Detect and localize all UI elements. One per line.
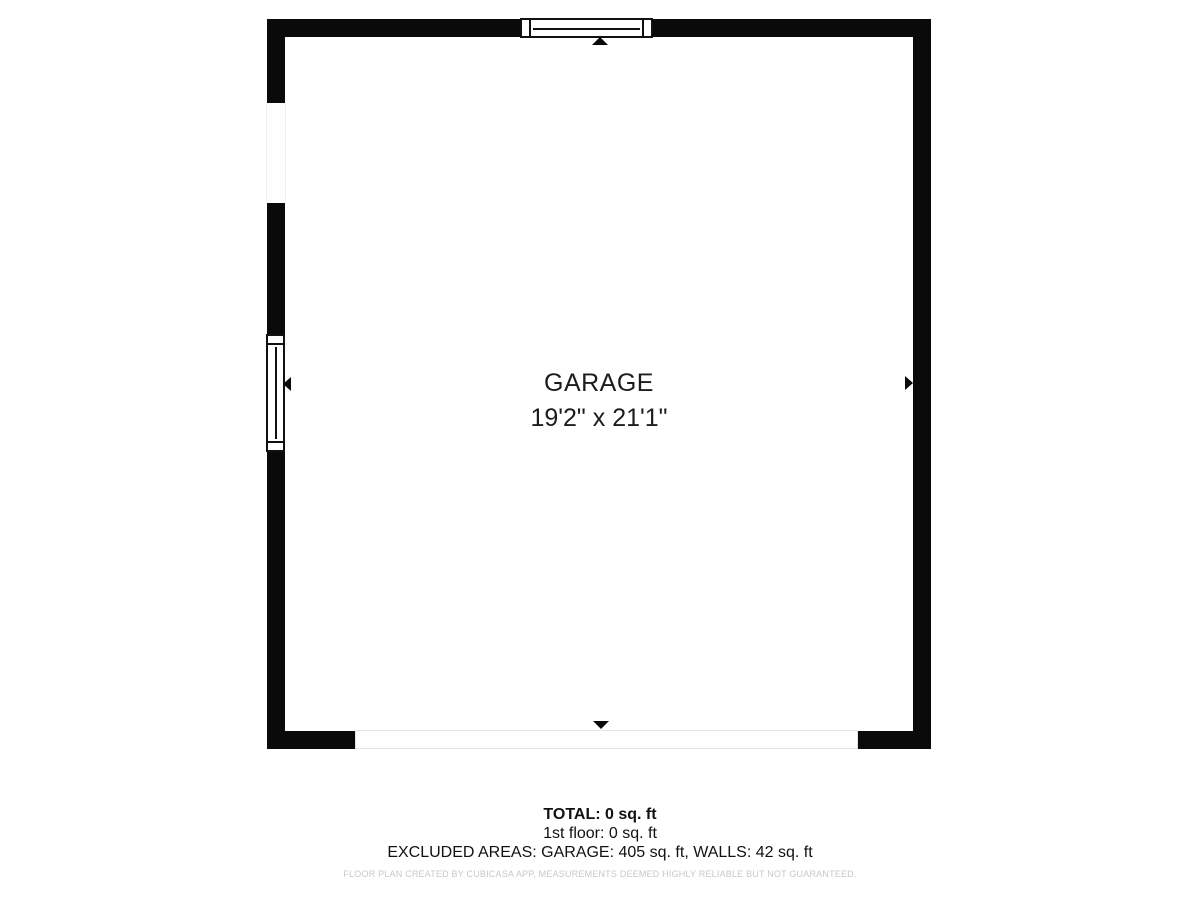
garage-door-opening [355,730,858,749]
area-summary: TOTAL: 0 sq. ft 1st floor: 0 sq. ft EXCL… [0,805,1200,863]
window-icon [266,334,285,452]
window-sill-top [268,336,283,345]
summary-excluded-areas: EXCLUDED AREAS: GARAGE: 405 sq. ft, WALL… [0,843,1200,863]
room-name: GARAGE [285,366,913,400]
floor-plan-canvas: GARAGE 19'2" x 21'1" TOTAL: 0 sq. ft 1st… [0,0,1200,900]
arrow-down-icon [593,721,609,729]
window-pane-line [533,28,640,30]
window-sill-right [642,20,651,36]
window-sill-left [522,20,531,36]
window-icon [520,18,653,38]
left-wall-opening [266,103,286,203]
summary-first-floor: 1st floor: 0 sq. ft [0,824,1200,843]
wall-right [913,19,931,749]
disclaimer-text: FLOOR PLAN CREATED BY CUBICASA APP, MEAS… [0,869,1200,879]
arrow-up-icon [592,37,608,45]
summary-total: TOTAL: 0 sq. ft [0,805,1200,824]
window-sill-bottom [268,441,283,450]
room-dimensions: 19'2" x 21'1" [285,400,913,436]
room-label: GARAGE 19'2" x 21'1" [285,366,913,436]
window-pane-line [275,347,277,439]
